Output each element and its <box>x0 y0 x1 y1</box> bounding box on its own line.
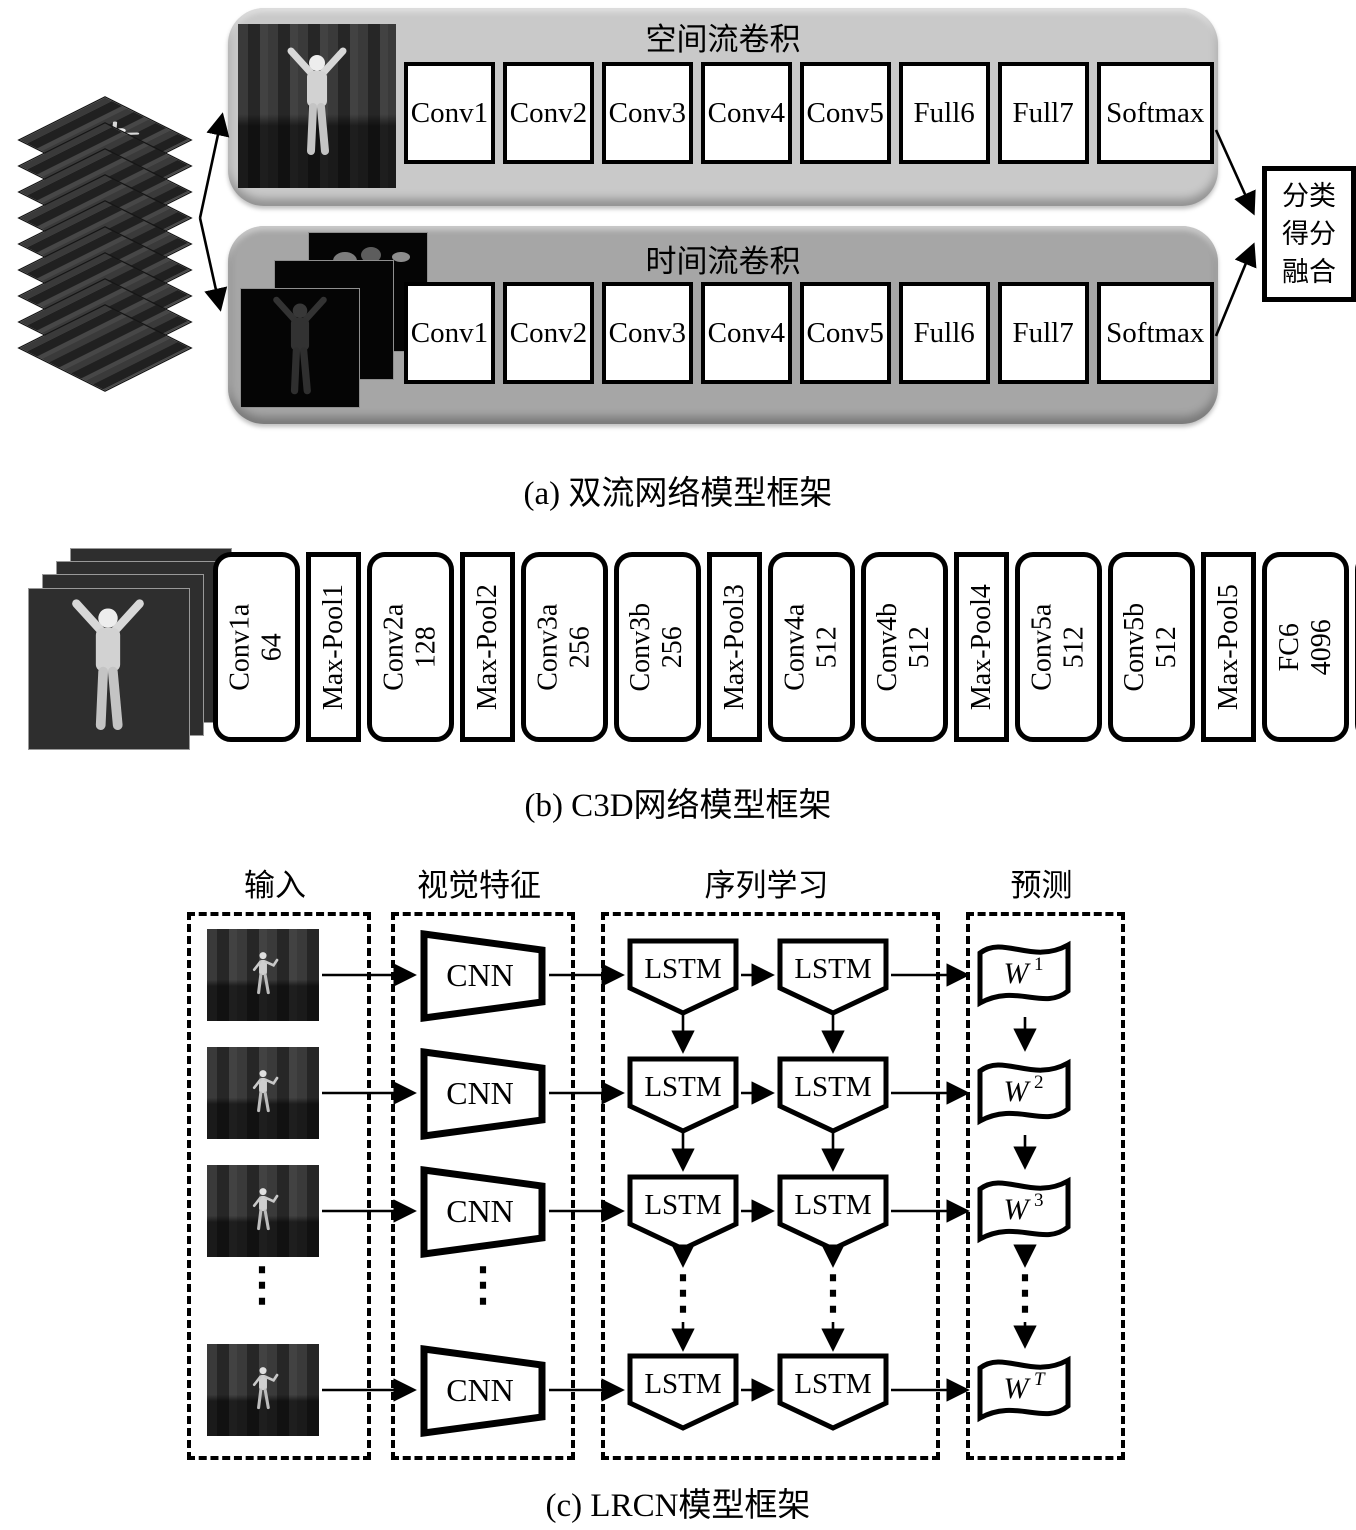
fusion-line: 分类 <box>1282 177 1336 215</box>
cnn-label: CNN <box>446 1075 514 1111</box>
fusion-line: 融合 <box>1282 253 1336 291</box>
layer-name: Conv1a <box>224 603 256 690</box>
layer-size: 512 <box>812 626 844 668</box>
c3d-box-conv3a: Conv3a256 <box>521 552 608 742</box>
layer-size: 256 <box>658 626 690 668</box>
prediction-base: W <box>1004 1075 1032 1108</box>
layer-box-conv4: Conv4 <box>701 62 792 164</box>
caption-b: (b) C3D网络模型框架 <box>0 778 1356 826</box>
c3d-frame-image <box>28 588 190 750</box>
c3d-box-conv1a: Conv1a64 <box>213 552 300 742</box>
lstm-label: LSTM <box>644 1189 721 1221</box>
lstm-label: LSTM <box>794 1368 871 1400</box>
prediction-base: W <box>1004 1372 1032 1405</box>
layer-box-full6: Full6 <box>899 282 990 384</box>
layer-box-conv3: Conv3 <box>602 282 693 384</box>
prediction-base: W <box>1004 1193 1032 1226</box>
layer-size: 256 <box>565 626 597 668</box>
cnn-shape: CNN <box>420 1048 546 1140</box>
arrow-spatial-to-fusion <box>1216 130 1253 212</box>
prediction-flag: W 1 <box>972 935 1076 1015</box>
cnn-shape: CNN <box>420 1166 546 1258</box>
c3d-box-fc6: FC64096 <box>1262 552 1349 742</box>
header-sequence-learning: 序列学习 <box>601 860 932 905</box>
cnn-shape: CNN <box>420 930 546 1022</box>
layer-size: 128 <box>411 626 443 668</box>
header-input: 输入 <box>187 860 363 905</box>
spatial-layer-row: Conv1 Conv2 Conv3 Conv4 Conv5 Full6 Full… <box>404 62 1214 164</box>
c3d-box-maxpool3: Max-Pool3 <box>707 552 762 742</box>
input-frame-image <box>207 1165 319 1257</box>
figure-page: 空间流卷积 Conv1 Conv2 Conv3 Conv4 Conv5 Full… <box>0 0 1356 1530</box>
layer-name: Max-Pool3 <box>718 584 750 710</box>
c3d-layer-row: Conv1a64 Max-Pool1 Conv2a128 Max-Pool2 C… <box>213 552 1356 742</box>
cnn-label: CNN <box>446 1193 514 1229</box>
prediction-flag: W 3 <box>972 1171 1076 1251</box>
layer-box-conv2: Conv2 <box>503 62 594 164</box>
lstm-label: LSTM <box>794 1189 871 1221</box>
ellipsis: ⋮ <box>1002 1270 1048 1316</box>
prediction-sup: 1 <box>1034 954 1044 975</box>
layer-box-conv5: Conv5 <box>800 62 891 164</box>
lstm-shape: LSTM <box>777 1174 889 1252</box>
c3d-box-conv4a: Conv4a512 <box>768 552 855 742</box>
optical-flow-image <box>240 288 360 408</box>
prediction-base: W <box>1004 957 1032 990</box>
lstm-shape: LSTM <box>627 938 739 1016</box>
c3d-box-conv5a: Conv5a512 <box>1015 552 1102 742</box>
prediction-sup: T <box>1034 1369 1046 1390</box>
lstm-shape: LSTM <box>777 938 889 1016</box>
input-frame-image <box>207 1344 319 1436</box>
layer-size: 64 <box>257 633 289 661</box>
cnn-label: CNN <box>446 957 514 993</box>
prediction-flag: W T <box>972 1350 1076 1430</box>
layer-size: 512 <box>1152 626 1184 668</box>
cnn-shape: CNN <box>420 1345 546 1437</box>
lstm-label: LSTM <box>794 1071 871 1103</box>
lstm-shape: LSTM <box>627 1174 739 1252</box>
c3d-box-maxpool2: Max-Pool2 <box>460 552 515 742</box>
c3d-box-conv4b: Conv4b512 <box>861 552 948 742</box>
caption-a: (a) 双流网络模型框架 <box>0 466 1356 514</box>
ellipsis: ⋮ <box>460 1262 506 1308</box>
prediction-flag: W 2 <box>972 1053 1076 1133</box>
layer-name: Conv4a <box>779 603 811 690</box>
layer-size: 4096 <box>1306 619 1338 675</box>
layer-box-softmax: Softmax <box>1097 62 1214 164</box>
layer-box-conv3: Conv3 <box>602 62 693 164</box>
lstm-shape: LSTM <box>777 1056 889 1134</box>
ellipsis: ⋮ <box>810 1270 856 1316</box>
layer-size: 512 <box>1059 626 1091 668</box>
layer-box-conv4: Conv4 <box>701 282 792 384</box>
ellipsis: ⋮ <box>239 1262 285 1308</box>
c3d-box-maxpool5: Max-Pool5 <box>1201 552 1256 742</box>
lstm-shape: LSTM <box>627 1056 739 1134</box>
video-frame-stack <box>15 80 225 410</box>
layer-name: Max-Pool4 <box>965 584 997 710</box>
c3d-box-conv2a: Conv2a128 <box>367 552 454 742</box>
layer-box-conv2: Conv2 <box>503 282 594 384</box>
lstm-label: LSTM <box>644 1368 721 1400</box>
c3d-input-stack <box>28 548 243 753</box>
layer-name: FC6 <box>1273 623 1305 671</box>
header-prediction: 预测 <box>966 860 1117 905</box>
cnn-label: CNN <box>446 1372 514 1408</box>
c3d-box-maxpool4: Max-Pool4 <box>954 552 1009 742</box>
input-frame-image <box>207 929 319 1021</box>
person-silhouette-icon <box>241 289 359 407</box>
layer-name: Max-Pool5 <box>1212 584 1244 710</box>
lstm-shape: LSTM <box>777 1353 889 1431</box>
arrow-temporal-to-fusion <box>1216 246 1253 336</box>
layer-box-full6: Full6 <box>899 62 990 164</box>
layer-name: Conv2a <box>378 603 410 690</box>
fusion-box: 分类 得分 融合 <box>1262 166 1356 302</box>
layer-name: Conv3a <box>532 603 564 690</box>
layer-box-conv5: Conv5 <box>800 282 891 384</box>
spatial-input-image <box>238 24 396 188</box>
input-frame-image <box>207 1047 319 1139</box>
lstm-shape: LSTM <box>627 1353 739 1431</box>
layer-name: Max-Pool2 <box>471 584 503 710</box>
c3d-box-conv3b: Conv3b256 <box>614 552 701 742</box>
ellipsis: ⋮ <box>660 1270 706 1316</box>
caption-c: (c) LRCN模型框架 <box>0 1478 1356 1526</box>
layer-box-softmax: Softmax <box>1097 282 1214 384</box>
layer-name: Conv3b <box>625 603 657 692</box>
layer-box-full7: Full7 <box>998 282 1089 384</box>
prediction-sup: 3 <box>1034 1190 1044 1211</box>
c3d-box-conv5b: Conv5b512 <box>1108 552 1195 742</box>
layer-box-conv1: Conv1 <box>404 62 495 164</box>
lstm-label: LSTM <box>644 953 721 985</box>
lstm-label: LSTM <box>794 953 871 985</box>
person-figure-icon <box>29 589 187 747</box>
layer-box-conv1: Conv1 <box>404 282 495 384</box>
header-visual-features: 视觉特征 <box>391 860 567 905</box>
c3d-box-maxpool1: Max-Pool1 <box>306 552 361 742</box>
layer-name: Conv4b <box>872 603 904 692</box>
layer-size: 512 <box>905 626 937 668</box>
layer-name: Conv5b <box>1119 603 1151 692</box>
layer-name: Conv5a <box>1026 603 1058 690</box>
layer-box-full7: Full7 <box>998 62 1089 164</box>
prediction-sup: 2 <box>1034 1072 1044 1093</box>
temporal-layer-row: Conv1 Conv2 Conv3 Conv4 Conv5 Full6 Full… <box>404 282 1214 384</box>
fusion-line: 得分 <box>1282 215 1336 253</box>
layer-name: Max-Pool1 <box>317 584 349 710</box>
lstm-label: LSTM <box>644 1071 721 1103</box>
